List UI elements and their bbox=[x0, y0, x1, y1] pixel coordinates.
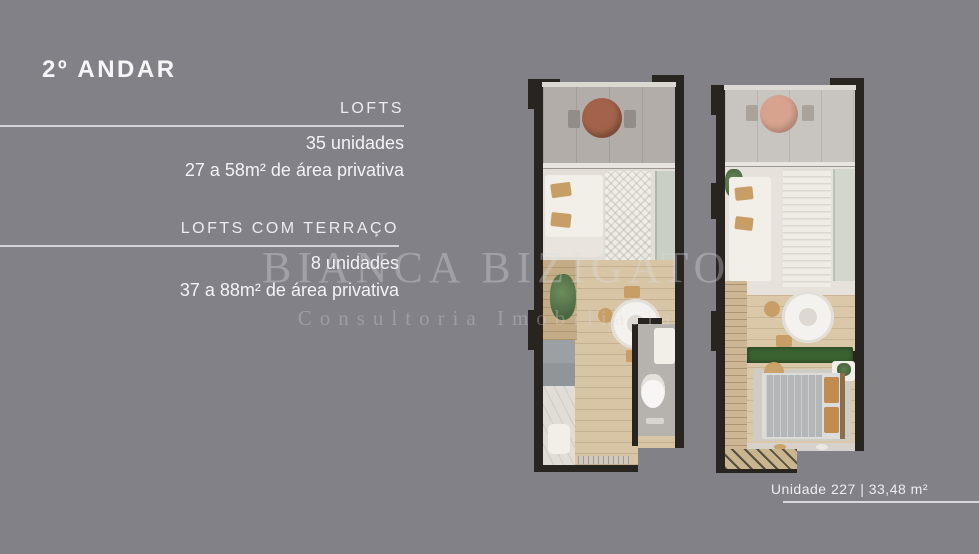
floor-plan-loft-terrace bbox=[716, 85, 864, 473]
lofts-divider-line bbox=[0, 125, 404, 127]
kitchen-sink bbox=[548, 424, 570, 454]
bathroom-sink-counter bbox=[654, 328, 675, 364]
toilet bbox=[641, 374, 665, 408]
bed-pillow-bottom bbox=[550, 212, 571, 228]
balcony-chair-left-2 bbox=[746, 105, 758, 121]
dining-chair-2b bbox=[776, 335, 792, 347]
lofts-area-text: 27 a 58m² de área privativa bbox=[0, 160, 404, 181]
balcony-chair-left bbox=[568, 110, 580, 128]
slide: 2º ANDAR LOFTS 35 unidades 27 a 58m² de … bbox=[0, 0, 979, 554]
kitchen-appliances bbox=[543, 340, 575, 386]
page-title: 2º ANDAR bbox=[42, 56, 177, 84]
balcony-chair-right-2 bbox=[802, 105, 814, 121]
dining-chair-2 bbox=[764, 301, 780, 317]
wall-pilaster-left-lower bbox=[711, 311, 720, 351]
lofts-info-block: LOFTS 35 unidades 27 a 58m² de área priv… bbox=[0, 100, 404, 181]
shower-fixture bbox=[646, 418, 664, 424]
lofts-terrace-divider-line bbox=[0, 245, 399, 247]
living-rug-2 bbox=[783, 169, 831, 287]
footprint-step-cutout bbox=[638, 448, 684, 472]
dining-plate-2 bbox=[799, 308, 817, 326]
bathroom-wall-top bbox=[638, 318, 662, 324]
entry-terrace-deck bbox=[725, 449, 797, 469]
unit-caption: Unidade 227 | 33,48 m² bbox=[700, 481, 928, 497]
balcony-chair-right bbox=[624, 110, 636, 128]
sofa-cushion-top bbox=[734, 186, 753, 201]
lofts-terrace-area-text: 37 a 88m² de área privativa bbox=[0, 280, 399, 301]
bed-2-headboard bbox=[840, 373, 845, 439]
entry-threshold bbox=[578, 456, 630, 464]
lofts-terrace-label: LOFTS COM TERRAÇO bbox=[0, 220, 399, 238]
side-wood-deck-strip bbox=[725, 281, 747, 467]
lofts-units-text: 35 unidades bbox=[0, 133, 404, 154]
wall-pilaster-left-upper bbox=[711, 183, 720, 219]
floor-plan-loft bbox=[534, 82, 684, 472]
bed-2-pillow-bottom bbox=[824, 407, 839, 433]
counter-plant bbox=[550, 274, 576, 320]
balcony-round-table bbox=[582, 98, 622, 138]
balcony-round-table-2 bbox=[760, 95, 798, 133]
bed-2-pillow-top bbox=[824, 377, 839, 403]
footprint-step-cutout-2 bbox=[797, 451, 864, 473]
wall-pilaster-left bbox=[528, 310, 538, 350]
dining-chair-top bbox=[624, 286, 640, 298]
lofts-label: LOFTS bbox=[0, 100, 404, 118]
lofts-terrace-units-text: 8 unidades bbox=[0, 253, 399, 274]
bed-pillow-top bbox=[550, 182, 572, 199]
unit-caption-line bbox=[783, 501, 979, 503]
lofts-terrace-info-block: LOFTS COM TERRAÇO 8 unidades 37 a 88m² d… bbox=[0, 220, 399, 301]
bed-2-blanket bbox=[766, 375, 822, 437]
wardrobe-cabinet-2 bbox=[833, 169, 855, 281]
threshold-item-b bbox=[816, 444, 828, 450]
bedroom-rug bbox=[605, 171, 651, 263]
sofa-cushion-bottom bbox=[734, 216, 753, 231]
